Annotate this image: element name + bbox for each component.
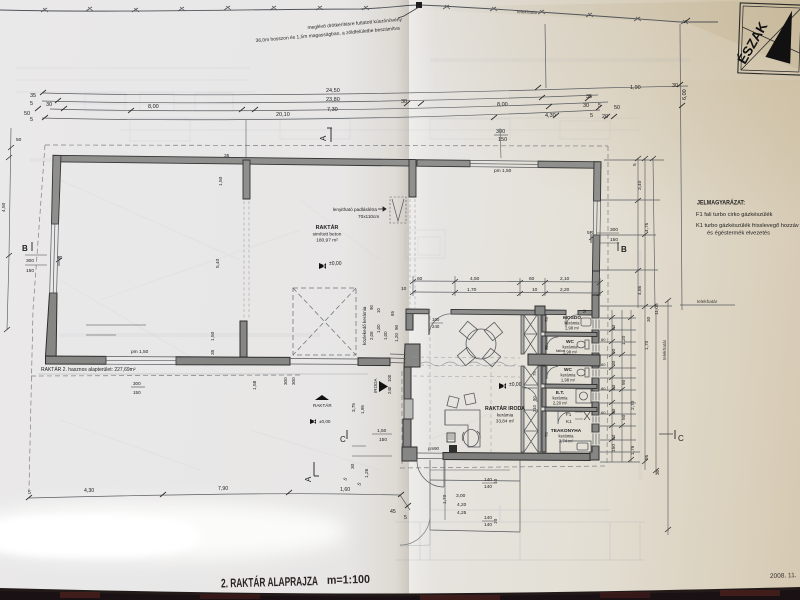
- svg-text:B: B: [621, 245, 627, 254]
- svg-text:5: 5: [632, 163, 638, 166]
- svg-text:50: 50: [57, 255, 63, 261]
- svg-text:50: 50: [614, 105, 620, 111]
- svg-text:2,10: 2,10: [560, 276, 570, 282]
- svg-text:90: 90: [611, 348, 617, 354]
- svg-text:60: 60: [601, 362, 606, 367]
- svg-text:1,98 m²: 1,98 m²: [561, 378, 576, 383]
- svg-text:lenyitható padláslétra: lenyitható padláslétra: [333, 207, 378, 212]
- svg-text:60: 60: [611, 434, 617, 440]
- svg-text:30: 30: [646, 316, 652, 322]
- svg-text:K1: K1: [566, 419, 572, 424]
- svg-text:75: 75: [532, 371, 537, 376]
- svg-text:210: 210: [532, 404, 537, 412]
- svg-text:60: 60: [601, 337, 606, 342]
- svg-text:pm 1,50: pm 1,50: [494, 168, 512, 174]
- svg-text:5: 5: [30, 117, 33, 123]
- svg-text:35: 35: [586, 94, 592, 100]
- svg-text:4,85: 4,85: [637, 285, 643, 295]
- svg-text:140: 140: [484, 515, 492, 521]
- svg-text:kerámia: kerámia: [497, 413, 514, 418]
- svg-text:180,97 m²: 180,97 m²: [316, 238, 338, 244]
- svg-text:1,95: 1,95: [360, 405, 365, 414]
- svg-text:RAKTÁR: RAKTÁR: [316, 224, 339, 231]
- svg-text:1,70: 1,70: [442, 494, 448, 504]
- svg-text:simított beton: simított beton: [313, 232, 342, 238]
- svg-text:WC: WC: [566, 339, 575, 345]
- svg-text:5: 5: [28, 490, 31, 496]
- svg-text:pm90: pm90: [428, 446, 440, 451]
- svg-text:20,10: 20,10: [276, 112, 290, 118]
- svg-text:4,30: 4,30: [84, 488, 94, 494]
- svg-text:90: 90: [394, 324, 399, 330]
- svg-text:3,74 m²: 3,74 m²: [559, 439, 574, 444]
- svg-text:3,75: 3,75: [351, 403, 356, 412]
- svg-text:10: 10: [532, 287, 538, 293]
- svg-text:és égéstermék elvezetés: és égéstermék elvezetés: [707, 231, 770, 237]
- svg-text:35: 35: [30, 93, 36, 99]
- svg-text:falicé: falicé: [556, 348, 566, 353]
- svg-text:90: 90: [532, 396, 537, 401]
- svg-text:2,20: 2,20: [560, 287, 570, 293]
- svg-text:10: 10: [493, 478, 499, 484]
- svg-text:240: 240: [432, 324, 440, 329]
- svg-text:10: 10: [376, 308, 381, 313]
- svg-text:150: 150: [498, 137, 507, 143]
- svg-text:50: 50: [24, 111, 30, 117]
- svg-text:MOSDÓ: MOSDÓ: [563, 313, 581, 321]
- svg-text:kerámia: kerámia: [561, 373, 577, 378]
- svg-text:90: 90: [369, 305, 374, 310]
- svg-text:300: 300: [496, 129, 505, 135]
- svg-text:50: 50: [621, 414, 627, 420]
- svg-text:1,26: 1,26: [364, 468, 370, 478]
- svg-text:95: 95: [644, 454, 650, 460]
- svg-text:JELMAGYARÁZAT:: JELMAGYARÁZAT:: [697, 198, 745, 207]
- svg-text:30: 30: [350, 463, 356, 469]
- svg-text:2,08: 2,08: [369, 331, 374, 340]
- svg-text:kerámia: kerámia: [553, 396, 569, 401]
- svg-text:10: 10: [401, 286, 407, 292]
- svg-text:1,98 m²: 1,98 m²: [565, 326, 580, 331]
- svg-text:IRODA: IRODA: [373, 378, 378, 393]
- svg-text:E.T.: E.T.: [556, 390, 564, 396]
- svg-text:140: 140: [484, 522, 492, 528]
- svg-text:1,79: 1,79: [630, 445, 636, 455]
- svg-text:telekhatár: telekhatár: [517, 9, 538, 15]
- svg-text:1,98 m²: 1,98 m²: [563, 350, 578, 355]
- svg-text:4,50: 4,50: [470, 276, 480, 282]
- svg-text:60: 60: [529, 276, 535, 282]
- svg-text:C: C: [678, 434, 684, 443]
- svg-text:60: 60: [601, 410, 606, 415]
- svg-text:WC: WC: [564, 367, 573, 373]
- svg-text:90: 90: [611, 408, 617, 414]
- svg-text:2. RAKTÁR ALAPRAJZA: 2. RAKTÁR ALAPRAJZA: [221, 573, 318, 590]
- svg-text:meglévő drótkerítésre futtatot: meglévő drótkerítésre futtatott kúszónöv…: [307, 17, 403, 31]
- svg-text:75: 75: [544, 317, 549, 322]
- svg-text:A: A: [304, 476, 313, 482]
- svg-text:7,30: 7,30: [327, 107, 338, 113]
- svg-text:23,80: 23,80: [326, 97, 340, 103]
- svg-text:33,84 m²: 33,84 m²: [496, 419, 515, 424]
- svg-text:telekhatár: telekhatár: [697, 299, 718, 304]
- svg-text:2,20 m²: 2,20 m²: [553, 401, 568, 406]
- svg-text:75: 75: [544, 345, 549, 350]
- svg-text:telekhatár: telekhatár: [662, 339, 667, 360]
- svg-text:A: A: [319, 135, 328, 141]
- svg-text:8,00: 8,00: [148, 104, 159, 110]
- svg-text:M: M: [582, 309, 587, 313]
- svg-text:3,40: 3,40: [637, 180, 643, 190]
- svg-text:50: 50: [16, 137, 22, 143]
- svg-text:150: 150: [611, 444, 617, 452]
- svg-text:F1: F1: [566, 412, 572, 417]
- svg-text:m=1:100: m=1:100: [327, 574, 370, 587]
- svg-text:100: 100: [387, 374, 392, 382]
- svg-text:kerámia: kerámia: [563, 345, 579, 350]
- svg-text:RAKTÁR 2. hasznos alapterület:: RAKTÁR 2. hasznos alapterület: 227,69m²: [41, 366, 136, 373]
- svg-text:300: 300: [26, 258, 34, 264]
- svg-text:1,60: 1,60: [340, 487, 350, 493]
- svg-text:10: 10: [493, 518, 499, 524]
- svg-text:1,90: 1,90: [630, 85, 641, 91]
- svg-text:300: 300: [133, 381, 141, 386]
- svg-text:240: 240: [387, 386, 392, 394]
- svg-text:150: 150: [379, 437, 387, 443]
- svg-text:C: C: [340, 435, 346, 444]
- svg-text:80: 80: [601, 386, 606, 391]
- svg-text:±0,00: ±0,00: [509, 382, 522, 388]
- svg-text:35: 35: [210, 349, 216, 355]
- svg-text:TEAKONYHA: TEAKONYHA: [551, 428, 582, 434]
- svg-text:közlekedő kerámia: közlekedő kerámia: [362, 306, 367, 345]
- svg-text:kerámia: kerámia: [559, 434, 575, 439]
- svg-text:RAKTÁR IRODA: RAKTÁR IRODA: [485, 405, 525, 412]
- svg-text:1,00: 1,00: [383, 331, 388, 340]
- svg-text:B: B: [22, 244, 28, 253]
- svg-text:30: 30: [611, 360, 617, 366]
- svg-text:4,30: 4,30: [545, 113, 556, 119]
- svg-text:8,00: 8,00: [497, 102, 508, 108]
- svg-text:RAKTÁR: RAKTÁR: [313, 402, 332, 408]
- svg-text:6,00: 6,00: [682, 89, 688, 100]
- svg-text:30: 30: [401, 99, 407, 105]
- svg-text:7,90: 7,90: [218, 486, 228, 492]
- svg-text:5: 5: [590, 113, 593, 119]
- svg-text:5: 5: [357, 481, 364, 487]
- svg-text:20: 20: [602, 114, 608, 120]
- svg-text:75: 75: [544, 432, 549, 437]
- svg-text:4,75: 4,75: [644, 222, 650, 232]
- svg-text:1,20: 1,20: [394, 333, 399, 342]
- svg-text:300: 300: [291, 377, 296, 385]
- svg-text:5: 5: [343, 476, 350, 482]
- svg-text:150: 150: [133, 390, 141, 395]
- svg-text:K1 turbo gázkészülék frissle: K1 turbo gázkészülék frisslevegő hozzáv: [696, 223, 799, 229]
- svg-text:85: 85: [390, 311, 395, 316]
- svg-text:4,25: 4,25: [457, 510, 467, 516]
- svg-text:±0,00: ±0,00: [329, 261, 342, 267]
- svg-text:5: 5: [404, 515, 407, 521]
- svg-text:1,70: 1,70: [467, 287, 477, 293]
- svg-text:1,50: 1,50: [218, 176, 224, 186]
- svg-text:60: 60: [611, 384, 617, 390]
- svg-text:5R: 5R: [587, 230, 594, 236]
- svg-text:140: 140: [484, 477, 492, 483]
- svg-text:30: 30: [655, 469, 661, 475]
- svg-text:5: 5: [598, 103, 601, 109]
- svg-text:150: 150: [26, 268, 34, 274]
- svg-text:60: 60: [611, 324, 617, 330]
- svg-text:24,50: 24,50: [326, 88, 340, 94]
- svg-text:150: 150: [610, 237, 618, 243]
- svg-text:30: 30: [583, 103, 589, 109]
- svg-text:30: 30: [672, 83, 678, 89]
- svg-text:4,50: 4,50: [1, 202, 7, 212]
- svg-text:11,05: 11,05: [654, 303, 660, 315]
- svg-text:±0,00: ±0,00: [319, 419, 331, 424]
- svg-text:ÉSZAK: ÉSZAK: [735, 19, 771, 66]
- svg-text:3,00: 3,00: [456, 493, 466, 499]
- svg-text:30: 30: [46, 102, 52, 108]
- svg-text:1,58: 1,58: [252, 380, 258, 390]
- svg-text:5: 5: [30, 101, 33, 107]
- svg-text:140: 140: [484, 484, 492, 490]
- svg-text:1,00: 1,00: [376, 324, 381, 333]
- svg-text:kerámia: kerámia: [565, 321, 581, 326]
- svg-text:300: 300: [610, 227, 618, 233]
- svg-text:1,20: 1,20: [621, 335, 627, 345]
- svg-text:pm 1,50: pm 1,50: [131, 349, 149, 355]
- svg-text:4,20: 4,20: [457, 502, 467, 508]
- svg-text:1,70: 1,70: [644, 340, 650, 350]
- svg-text:36,0m hosszon és 1,5m magasság: 36,0m hosszon és 1,5m magasságban, a zöl…: [255, 26, 400, 45]
- svg-text:1,50: 1,50: [377, 428, 387, 434]
- svg-text:300: 300: [283, 377, 288, 385]
- svg-text:100: 100: [432, 317, 440, 322]
- svg-text:45: 45: [390, 509, 396, 515]
- svg-text:70x110cm: 70x110cm: [358, 214, 379, 219]
- svg-text:35: 35: [224, 153, 230, 159]
- svg-text:60: 60: [417, 276, 423, 282]
- svg-text:90: 90: [621, 379, 627, 385]
- svg-text:5,40: 5,40: [215, 258, 221, 268]
- svg-text:F1 fali turbo cirko gázkészü: F1 fali turbo cirko gázkészülék: [696, 212, 773, 218]
- svg-text:2008. 11.: 2008. 11.: [770, 572, 797, 580]
- svg-text:2,70: 2,70: [630, 400, 636, 410]
- svg-text:1,50: 1,50: [210, 331, 216, 341]
